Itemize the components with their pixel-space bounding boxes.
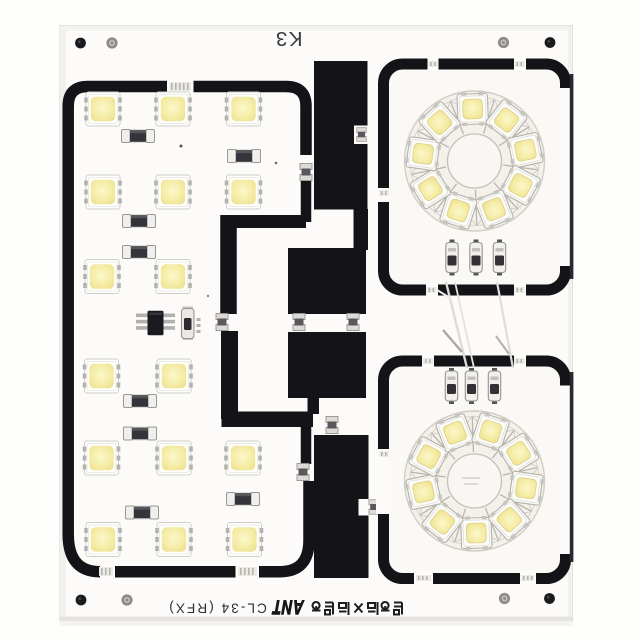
svg-text:K3: K3 [274, 27, 302, 50]
svg-text:CL-34 (RFX): CL-34 (RFX) [167, 601, 267, 616]
